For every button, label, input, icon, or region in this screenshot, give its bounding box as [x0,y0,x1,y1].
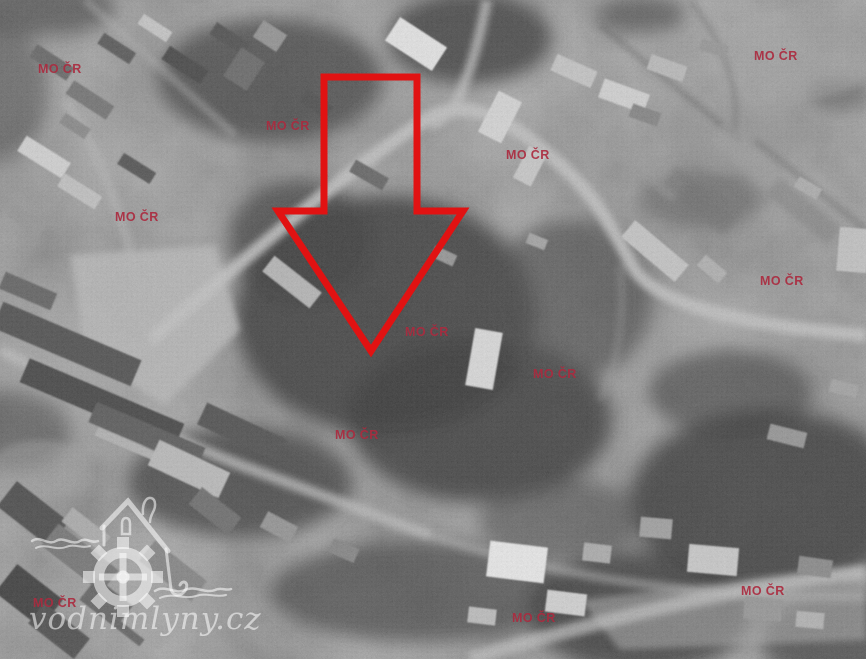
mo-cr-watermark: MO ČR [266,119,310,133]
defense-watermark-layer: MO ČRMO ČRMO ČRMO ČRMO ČRMO ČRMO ČRMO ČR… [0,0,866,659]
mo-cr-watermark: MO ČR [335,428,379,442]
mo-cr-watermark: MO ČR [533,367,577,381]
mo-cr-watermark: MO ČR [741,584,785,598]
aerial-photo-viewport: MO ČRMO ČRMO ČRMO ČRMO ČRMO ČRMO ČRMO ČR… [0,0,866,659]
mo-cr-watermark: MO ČR [754,49,798,63]
vodnimlyny-watermark-label: vodnimlyny.cz [29,602,262,636]
mo-cr-watermark: MO ČR [512,611,556,625]
mo-cr-watermark: MO ČR [506,148,550,162]
mo-cr-watermark: MO ČR [115,210,159,224]
mo-cr-watermark: MO ČR [405,325,449,339]
mo-cr-watermark: MO ČR [760,274,804,288]
mo-cr-watermark: MO ČR [38,62,82,76]
